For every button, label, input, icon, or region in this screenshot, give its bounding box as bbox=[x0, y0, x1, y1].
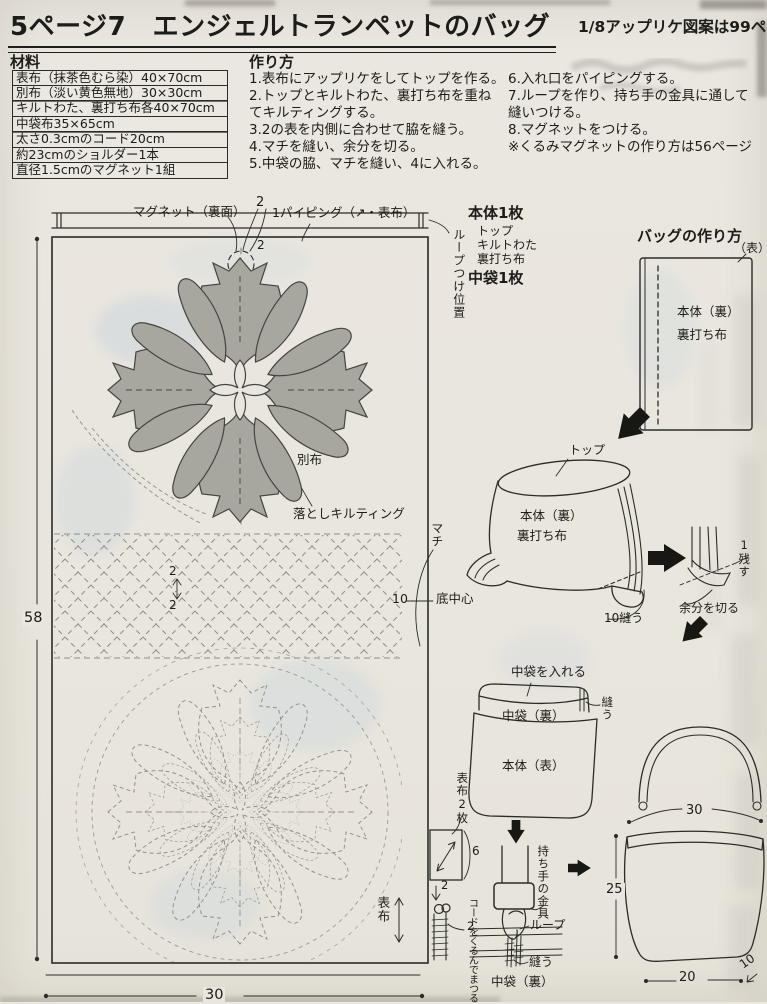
piping-label: 1パイピング（↗・表布） bbox=[272, 206, 415, 220]
diagram-heading: バッグの作り方 bbox=[637, 228, 742, 245]
loop-dim-label: 2 bbox=[467, 920, 474, 933]
step-line: 縫いつける。 bbox=[508, 105, 752, 122]
step-line: 6.入れ口をパイピングする。 bbox=[508, 71, 752, 88]
sew10-label: 10縫う bbox=[604, 612, 643, 626]
gusset-dim: 10 bbox=[392, 592, 408, 606]
step-insert-lining bbox=[469, 683, 600, 818]
body-back-label: 本体（裏） bbox=[677, 305, 740, 319]
cutting-body: 本体1枚 bbox=[468, 205, 523, 222]
body-back2-label: 本体（裏） bbox=[520, 509, 583, 523]
layer-item: トップ bbox=[477, 225, 537, 239]
step-line: 1.表布にアップリケをしてトップを作る。 bbox=[249, 71, 504, 88]
step-line: 7.ループを作り、持ち手の金具に通して bbox=[508, 88, 752, 105]
title-rule bbox=[8, 46, 556, 53]
loop-position-label: ループつけ位置 bbox=[451, 228, 465, 319]
step-line: 2.トップとキルトわた、裏打ち布を重ね bbox=[249, 88, 504, 105]
material-row: 表布（抹茶色むら染）40×70cm bbox=[12, 70, 228, 87]
leave1-label: 1残す bbox=[737, 538, 750, 578]
material-row: キルトわた、裏打ち布各40×70cm bbox=[12, 100, 228, 117]
cut-excess-label: 余分を切る bbox=[679, 602, 739, 616]
grain-label: 表布 bbox=[375, 896, 389, 923]
insert-lining-label: 中袋を入れる bbox=[511, 665, 586, 679]
magnet-dim: 2 bbox=[256, 196, 264, 211]
howto-steps-right: 6.入れ口をパイピングする。 7.ループを作り、持ち手の金具に通して 縫いつける… bbox=[508, 71, 752, 156]
bag-width-bottom-dim: 20 bbox=[679, 971, 696, 986]
backing-label: 裏打ち布 bbox=[677, 328, 727, 342]
howto-heading: 作り方 bbox=[249, 54, 294, 71]
material-row: 約23cmのショルダー1本 bbox=[12, 147, 228, 164]
material-row: 直径1.5cmのマグネット1組 bbox=[12, 162, 228, 179]
dim6-label: 6 bbox=[472, 845, 480, 859]
top-label: トップ bbox=[569, 444, 605, 458]
sew-b-label: 縫う bbox=[529, 956, 553, 970]
layer-item: キルトわた bbox=[477, 239, 537, 253]
material-row: 中袋布35×65cm bbox=[12, 116, 228, 133]
material-row: 別布（淡い黄色無地）30×30cm bbox=[12, 85, 228, 102]
step-line: 3.2の表を内側に合わせて脇を縫う。 bbox=[249, 122, 504, 139]
step-line: てキルティングする。 bbox=[249, 105, 504, 122]
width-dim: 30 bbox=[203, 987, 225, 1004]
sew-a-label: 縫う bbox=[600, 696, 613, 721]
backing2-label: 裏打ち布 bbox=[517, 529, 567, 543]
fabric2-label: 表布2枚 bbox=[455, 772, 468, 825]
page-title: 5ページ7 エンジェルトランペットのバッグ bbox=[10, 13, 550, 43]
grid-dim-a: 2 bbox=[169, 565, 177, 579]
materials-table: 表布（抹茶色むら染）40×70cm 別布（淡い黄色無地）30×30cm キルトわ… bbox=[12, 71, 228, 179]
step-line: ※くるみマグネットの作り方は56ページ bbox=[508, 139, 752, 156]
magnet-gap-dim: 2 bbox=[257, 239, 265, 253]
front-mark: （表） bbox=[734, 242, 767, 256]
cutting-lining: 中袋1枚 bbox=[468, 270, 523, 287]
fitting-label: 持ち手の金具 bbox=[536, 845, 549, 920]
material-row: 太さ0.3cmのコード20cm bbox=[12, 131, 228, 148]
body-front-label: 本体（表） bbox=[502, 759, 565, 773]
height-dim: 58 bbox=[22, 610, 44, 627]
dim2a-label: 2 bbox=[441, 879, 448, 892]
loop-label: ループ bbox=[530, 919, 565, 933]
step-line: 5.中袋の脇、マチを縫い、4に入れる。 bbox=[249, 156, 504, 173]
cord-note-label: コードをくるんでまつる bbox=[466, 898, 478, 1003]
step-line: 4.マチを縫い、余分を切る。 bbox=[249, 139, 504, 156]
crosshatch-quilting bbox=[54, 534, 402, 658]
bag-height-dim: 25 bbox=[604, 883, 625, 898]
grid-dim-b: 2 bbox=[169, 599, 177, 613]
scanned-page: 5ページ7 エンジェルトランペットのバッグ 1/8アップリケ図案は99ペ 材料 … bbox=[0, 0, 767, 1002]
step-line: 8.マグネットをつける。 bbox=[508, 122, 752, 139]
corner-note: 1/8アップリケ図案は99ペ bbox=[578, 19, 766, 37]
bottom-center-label: 底中心 bbox=[436, 592, 474, 606]
lining-back-label: 中袋（裏） bbox=[502, 709, 565, 723]
magnet-label: マグネット（裏面） bbox=[133, 205, 246, 219]
layer-item: 裏打ち布 bbox=[477, 253, 537, 267]
lining-back2-label: 中袋（裏） bbox=[491, 975, 554, 989]
howto-steps-left: 1.表布にアップリケをしてトップを作る。 2.トップとキルトわた、裏打ち布を重ね… bbox=[249, 71, 504, 172]
bag-width-top-dim: 30 bbox=[686, 804, 703, 819]
cutting-layers: トップ キルトわた 裏打ち布 bbox=[477, 225, 537, 266]
ditch-quilting-label: 落としキルティング bbox=[293, 507, 405, 521]
applique-fabric-label: 別布 bbox=[297, 453, 322, 467]
gusset-label: マチ bbox=[429, 522, 443, 548]
